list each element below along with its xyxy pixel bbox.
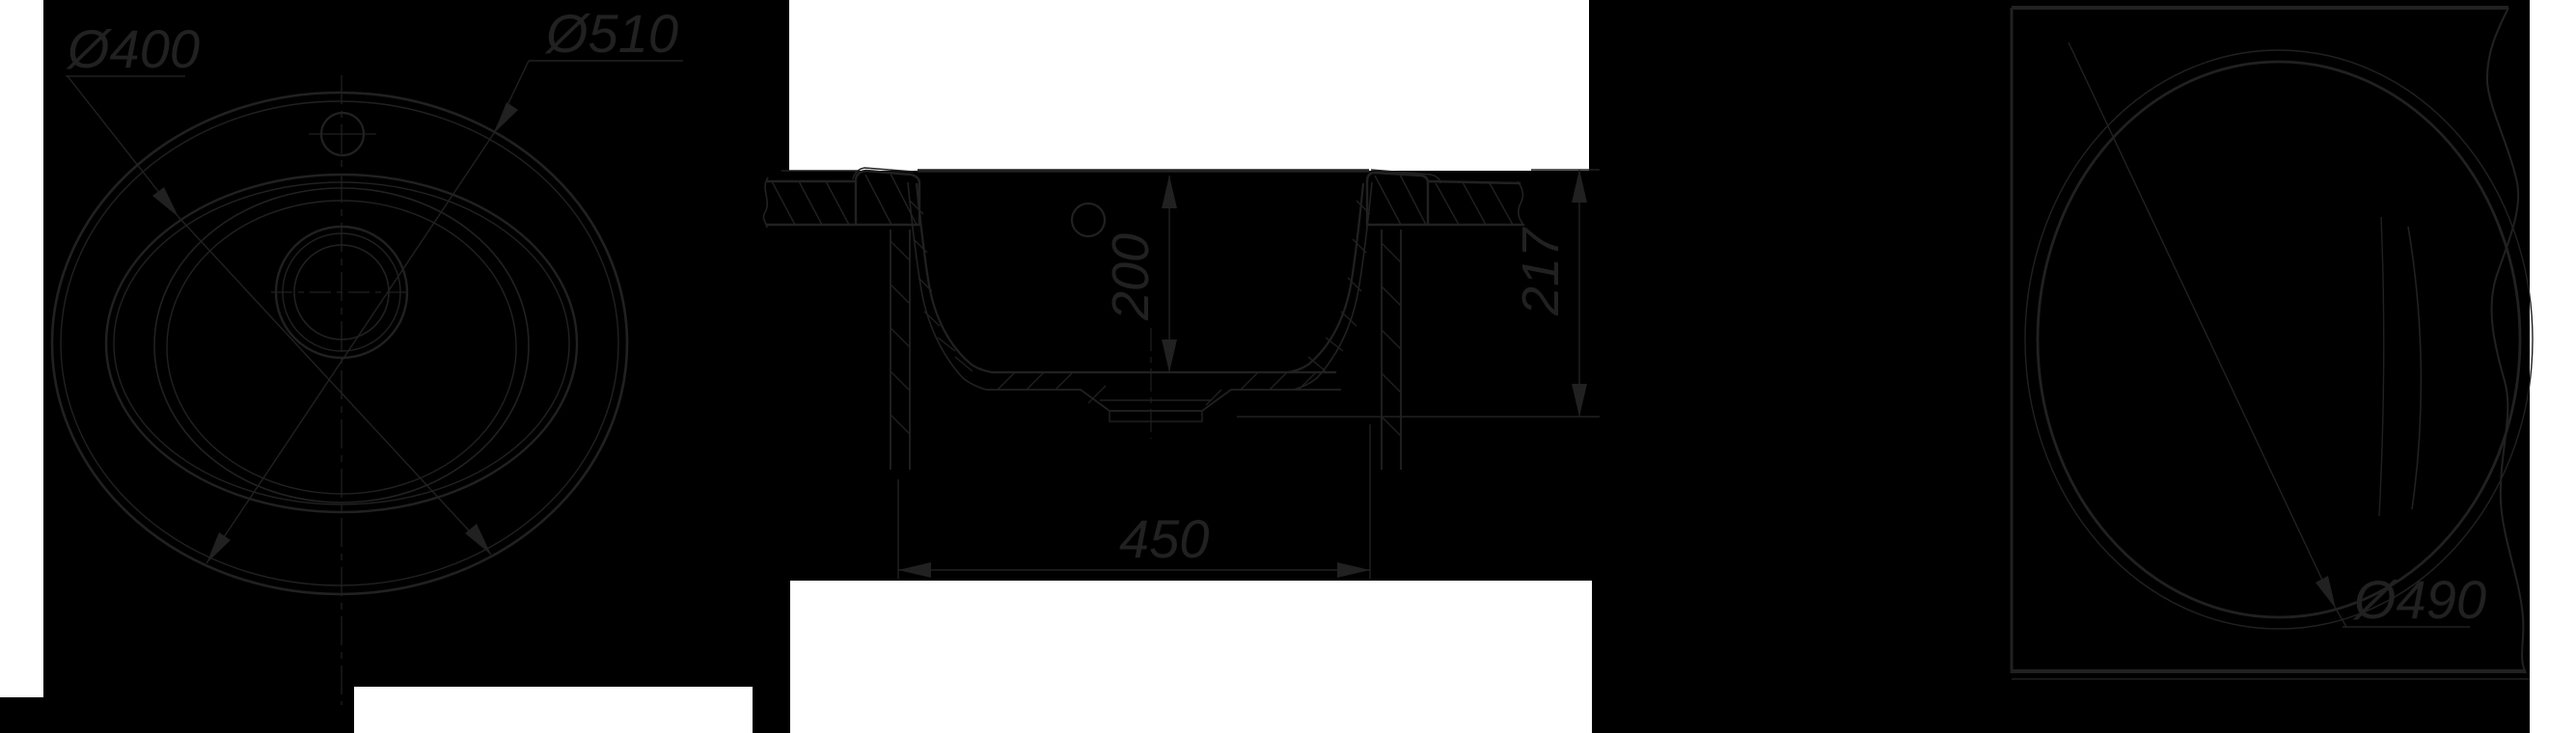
faucet-hole bbox=[309, 113, 376, 155]
diameter-line-510 bbox=[206, 133, 494, 563]
sink-rim-right bbox=[1367, 170, 1440, 225]
faucet-hole-section bbox=[1072, 204, 1105, 236]
hatch-lines bbox=[772, 181, 849, 225]
clamp-right bbox=[1382, 230, 1401, 470]
arrowhead bbox=[898, 562, 931, 578]
dim-label-200: 200 bbox=[1102, 233, 1160, 321]
dim-leader bbox=[494, 61, 529, 133]
arrowhead bbox=[2316, 576, 2336, 609]
arrowhead bbox=[1572, 170, 1587, 203]
arrowhead bbox=[206, 532, 231, 563]
dim-d400: Ø400 bbox=[66, 18, 200, 217]
bowl-wall-left bbox=[908, 182, 992, 390]
reveal-arc-1 bbox=[2379, 217, 2384, 516]
sink-outline-circle bbox=[2025, 50, 2533, 629]
counter-top-line bbox=[1428, 181, 1521, 183]
dim-leader-diagonal bbox=[2069, 42, 2336, 609]
arrowhead bbox=[465, 524, 491, 555]
dim-d510: Ø510 bbox=[494, 3, 683, 133]
dim-label-d400: Ø400 bbox=[66, 18, 200, 79]
break-line-wavy bbox=[763, 177, 768, 228]
bowl-wall-inner bbox=[1288, 183, 1363, 372]
paper-fragment-left-strip bbox=[0, 0, 43, 697]
bowl-wall-inner bbox=[917, 183, 992, 372]
paper-fragment-section-bottom bbox=[790, 581, 1592, 733]
countertop-left bbox=[763, 177, 856, 228]
arrowhead bbox=[1337, 562, 1370, 578]
hatch-lines bbox=[910, 201, 973, 371]
clamp-left bbox=[891, 230, 910, 470]
dim-label-450: 450 bbox=[1119, 508, 1209, 569]
hatch-lines bbox=[1436, 182, 1513, 225]
cutout-view: Ø490 bbox=[2012, 8, 2533, 679]
dim-450: 450 bbox=[898, 424, 1370, 579]
arrowhead bbox=[1572, 384, 1587, 417]
sink-technical-drawing: Ø400 Ø510 bbox=[0, 0, 2576, 733]
drain-flange bbox=[1110, 411, 1202, 421]
dim-label-d490: Ø490 bbox=[2352, 569, 2486, 630]
dim-label-d510: Ø510 bbox=[544, 3, 678, 64]
arrowhead bbox=[1162, 339, 1177, 372]
top-view: Ø400 Ø510 bbox=[52, 3, 683, 705]
rim-outer-edge bbox=[52, 93, 627, 594]
bowl-wall-right bbox=[1288, 182, 1372, 390]
paper-fragment-section-top bbox=[789, 0, 1589, 171]
paper-fragment-bottom-left bbox=[354, 687, 753, 733]
hatch-lines bbox=[891, 241, 910, 434]
drawing-canvas: Ø400 Ø510 bbox=[0, 0, 2576, 733]
dim-217: 217 bbox=[1237, 170, 1600, 417]
break-line-wavy bbox=[1518, 181, 1524, 226]
countertop-right bbox=[1428, 181, 1524, 226]
dim-200: 200 bbox=[1102, 176, 1177, 372]
reveal-arc-2 bbox=[2408, 227, 2421, 509]
dim-label-217: 217 bbox=[1512, 227, 1570, 316]
arrowhead bbox=[1162, 176, 1177, 208]
dim-leader-kink bbox=[2336, 609, 2346, 627]
section-view: 200 217 450 bbox=[763, 168, 1600, 579]
paper-fragment-right-strip bbox=[2530, 0, 2576, 733]
paper-fragments bbox=[0, 0, 2576, 733]
hatch-lines bbox=[1375, 175, 1426, 225]
dim-d490: Ø490 bbox=[2069, 42, 2486, 630]
hatch-lines bbox=[1382, 243, 1401, 436]
cutout-circle bbox=[2038, 62, 2520, 617]
